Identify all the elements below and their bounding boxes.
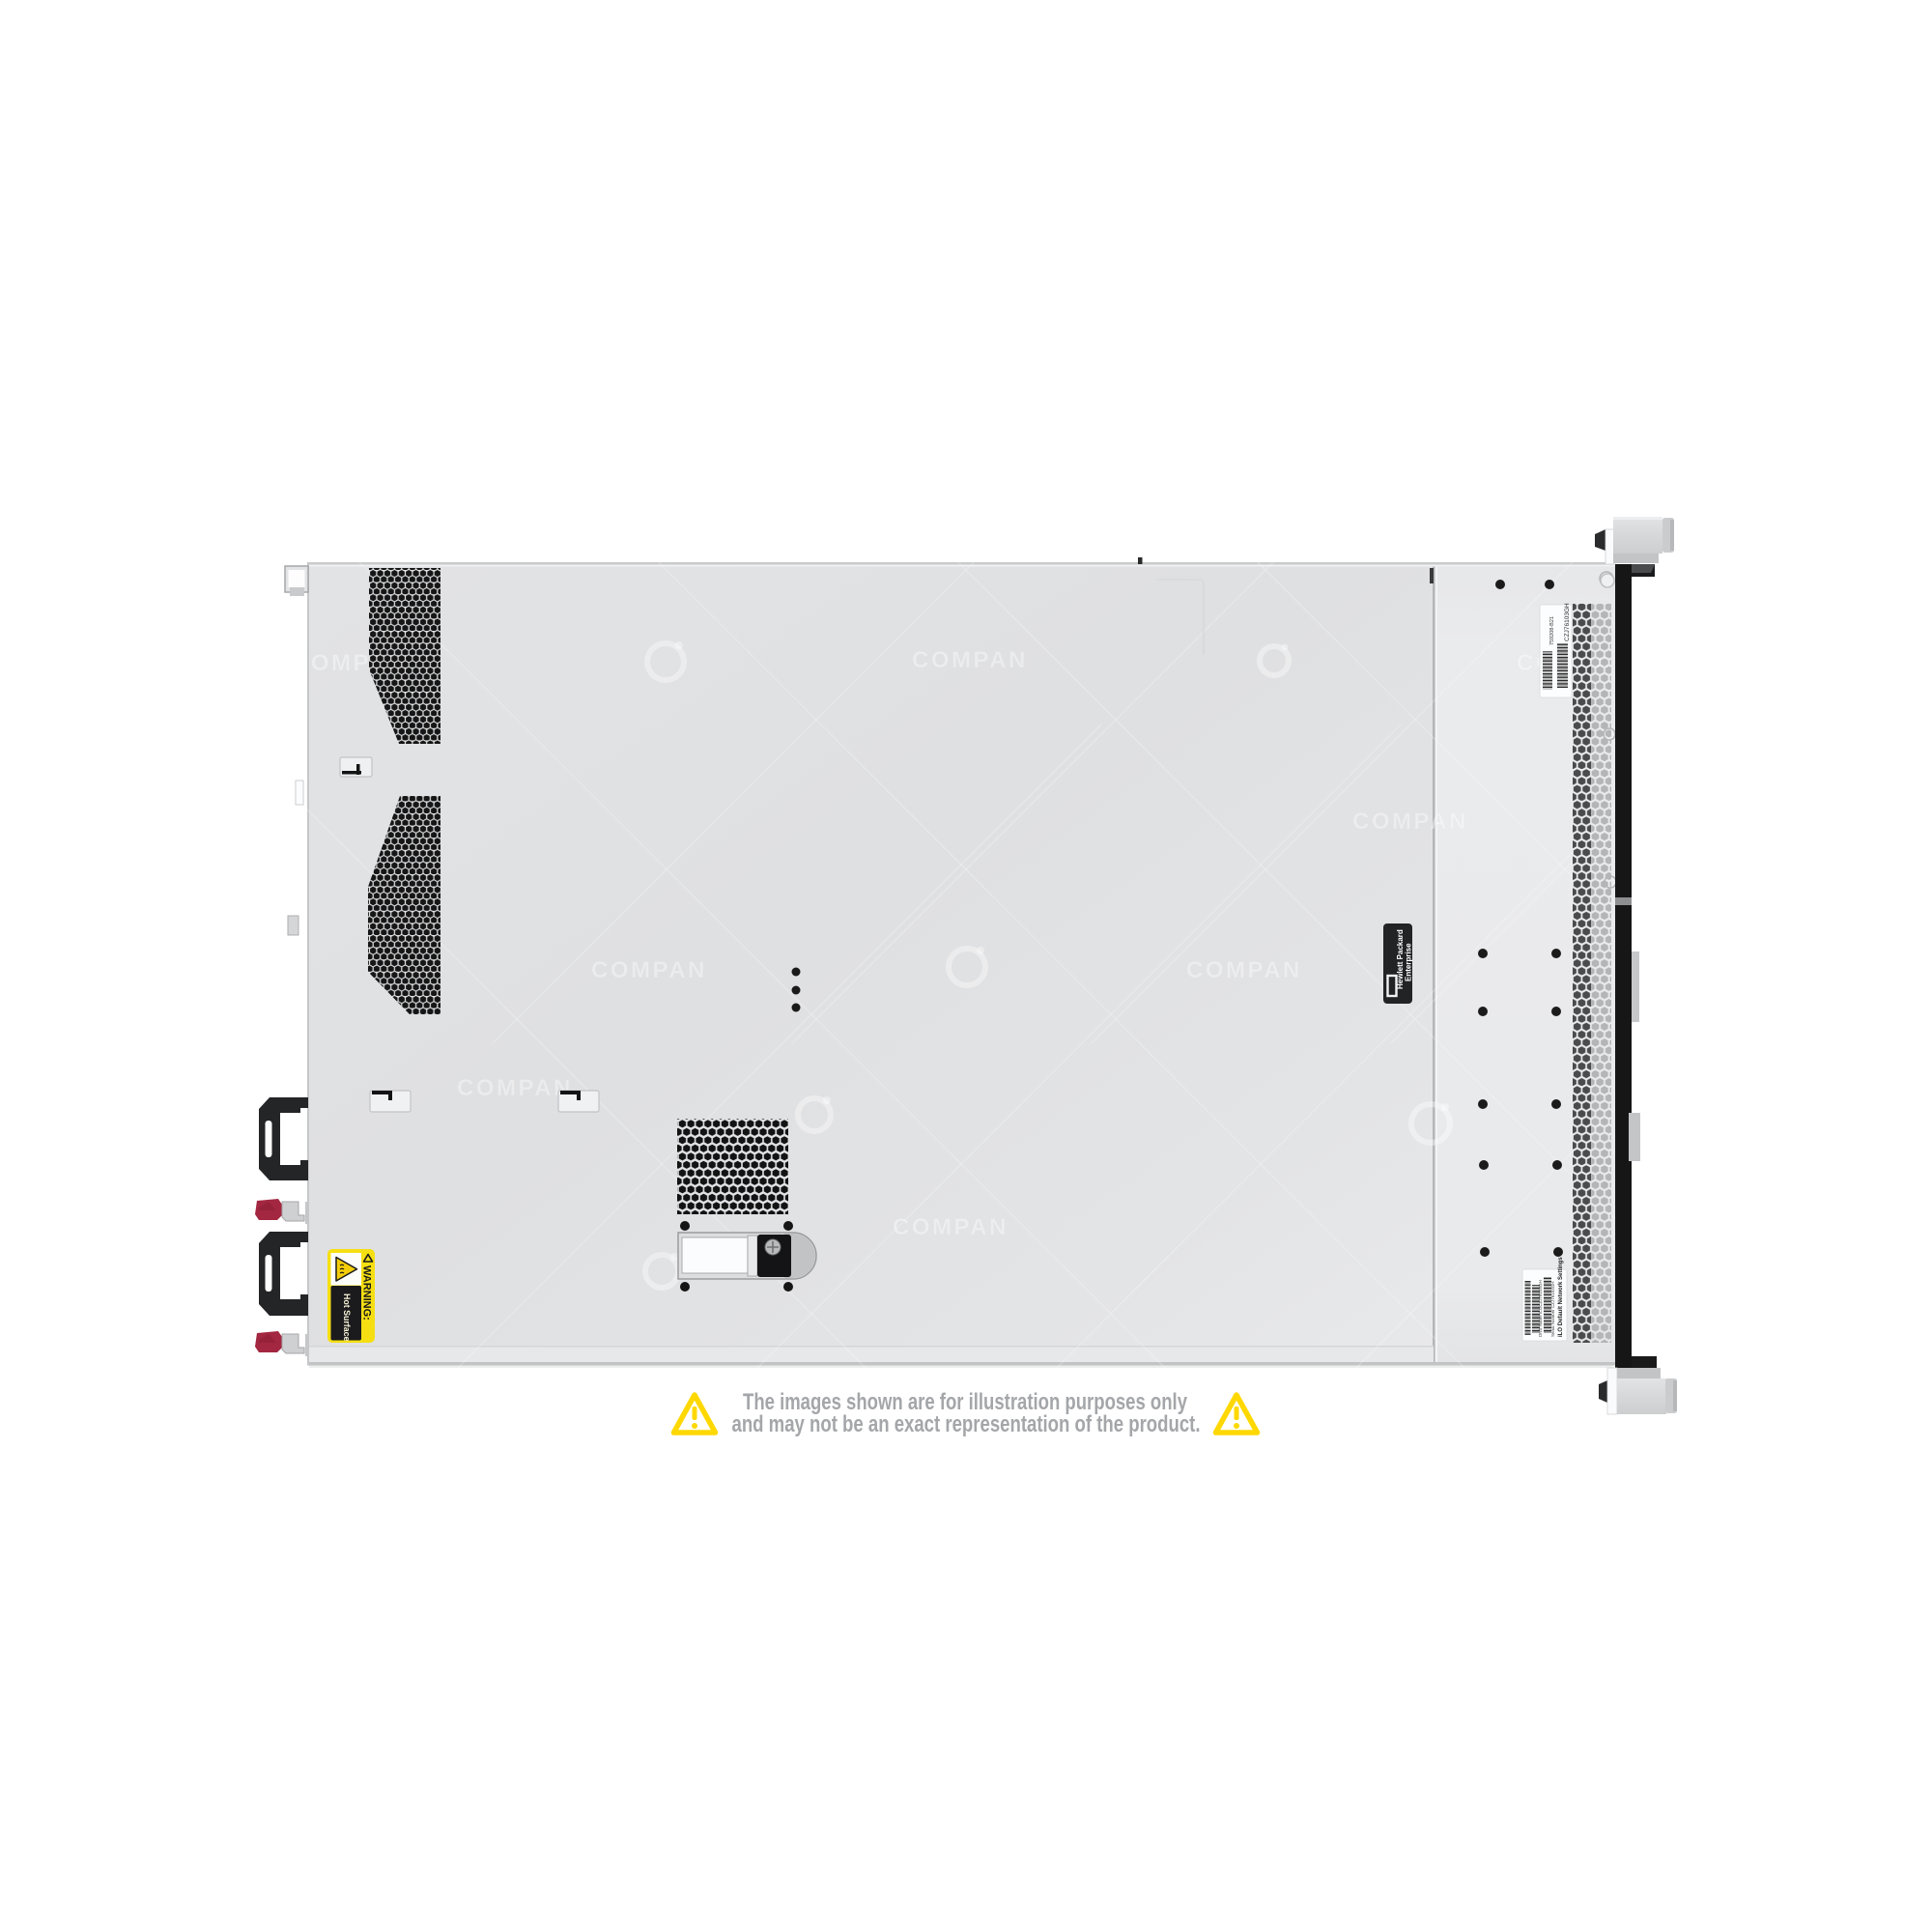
svg-text:COMPAN: COMPAN	[591, 957, 707, 983]
svg-text:COMPAN: COMPAN	[912, 647, 1028, 673]
svg-text:iLO Default Network Settings: iLO Default Network Settings	[1558, 1257, 1564, 1337]
svg-text:COMPAN: COMPAN	[1352, 809, 1468, 835]
svg-text:Hot Surface: Hot Surface	[342, 1293, 352, 1341]
svg-text:COMPAN: COMPAN	[893, 1214, 1009, 1240]
svg-text:CZJ76103GH: CZJ76103GH	[1564, 603, 1571, 641]
svg-text:WARNING:: WARNING:	[361, 1265, 373, 1321]
svg-text:759208-B21: 759208-B21	[1549, 616, 1555, 645]
svg-text:and may not be an exact repres: and may not be an exact representation o…	[732, 1411, 1201, 1437]
svg-text:Enterprise: Enterprise	[1405, 943, 1413, 981]
svg-text:COMPAN: COMPAN	[1186, 957, 1302, 983]
svg-text:COMPAN: COMPAN	[457, 1075, 573, 1101]
